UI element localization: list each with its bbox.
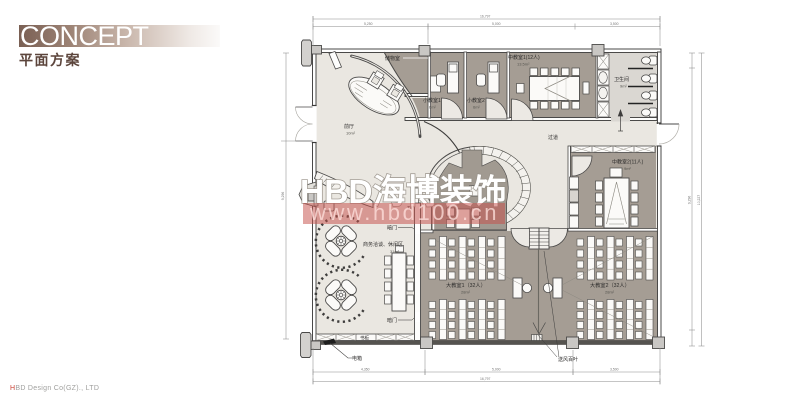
svg-text:暗门: 暗门 xyxy=(387,317,397,324)
svg-text:6m²: 6m² xyxy=(473,105,481,110)
svg-text:9m²: 9m² xyxy=(624,166,632,171)
svg-text:16,797: 16,797 xyxy=(480,15,490,19)
svg-text:5,250: 5,250 xyxy=(364,22,373,26)
svg-text:13.5m²: 13.5m² xyxy=(517,62,530,67)
svg-text:中教室1(12人): 中教室1(12人) xyxy=(508,54,540,61)
svg-text:28m²: 28m² xyxy=(461,290,471,295)
svg-text:3,500: 3,500 xyxy=(610,22,619,26)
svg-text:过道: 过道 xyxy=(548,134,558,141)
svg-text:书柜: 书柜 xyxy=(360,335,369,342)
svg-text:5,000: 5,000 xyxy=(492,368,501,372)
svg-text:中教室2(11人): 中教室2(11人) xyxy=(612,159,644,166)
svg-text:31m²: 31m² xyxy=(390,249,400,254)
svg-text:小教室2: 小教室2 xyxy=(467,97,485,104)
svg-text:9,296: 9,296 xyxy=(281,192,285,201)
svg-text:商务洽谈、休闲区: 商务洽谈、休闲区 xyxy=(363,241,403,248)
svg-text:10,227: 10,227 xyxy=(697,195,701,205)
svg-text:小教室1: 小教室1 xyxy=(423,97,441,104)
svg-text:9m²: 9m² xyxy=(620,84,628,89)
svg-text:储物室: 储物室 xyxy=(385,55,400,62)
svg-text:10m²: 10m² xyxy=(346,131,356,136)
svg-text:3,500: 3,500 xyxy=(610,368,619,372)
svg-text:卫生间: 卫生间 xyxy=(614,76,629,83)
svg-text:6m²: 6m² xyxy=(429,105,437,110)
svg-text:前厅: 前厅 xyxy=(344,123,354,130)
svg-text:大教室1（32人）: 大教室1（32人） xyxy=(446,281,486,289)
svg-text:9,296: 9,296 xyxy=(688,196,692,205)
svg-text:电箱: 电箱 xyxy=(352,355,362,362)
svg-text:4,350: 4,350 xyxy=(361,368,370,372)
svg-text:大教室2（32人）: 大教室2（32人） xyxy=(590,281,630,289)
svg-text:28m²: 28m² xyxy=(605,290,615,295)
svg-text:5,000: 5,000 xyxy=(492,22,501,26)
svg-text:16,797: 16,797 xyxy=(480,377,490,381)
svg-text:送风百叶: 送风百叶 xyxy=(558,356,578,363)
